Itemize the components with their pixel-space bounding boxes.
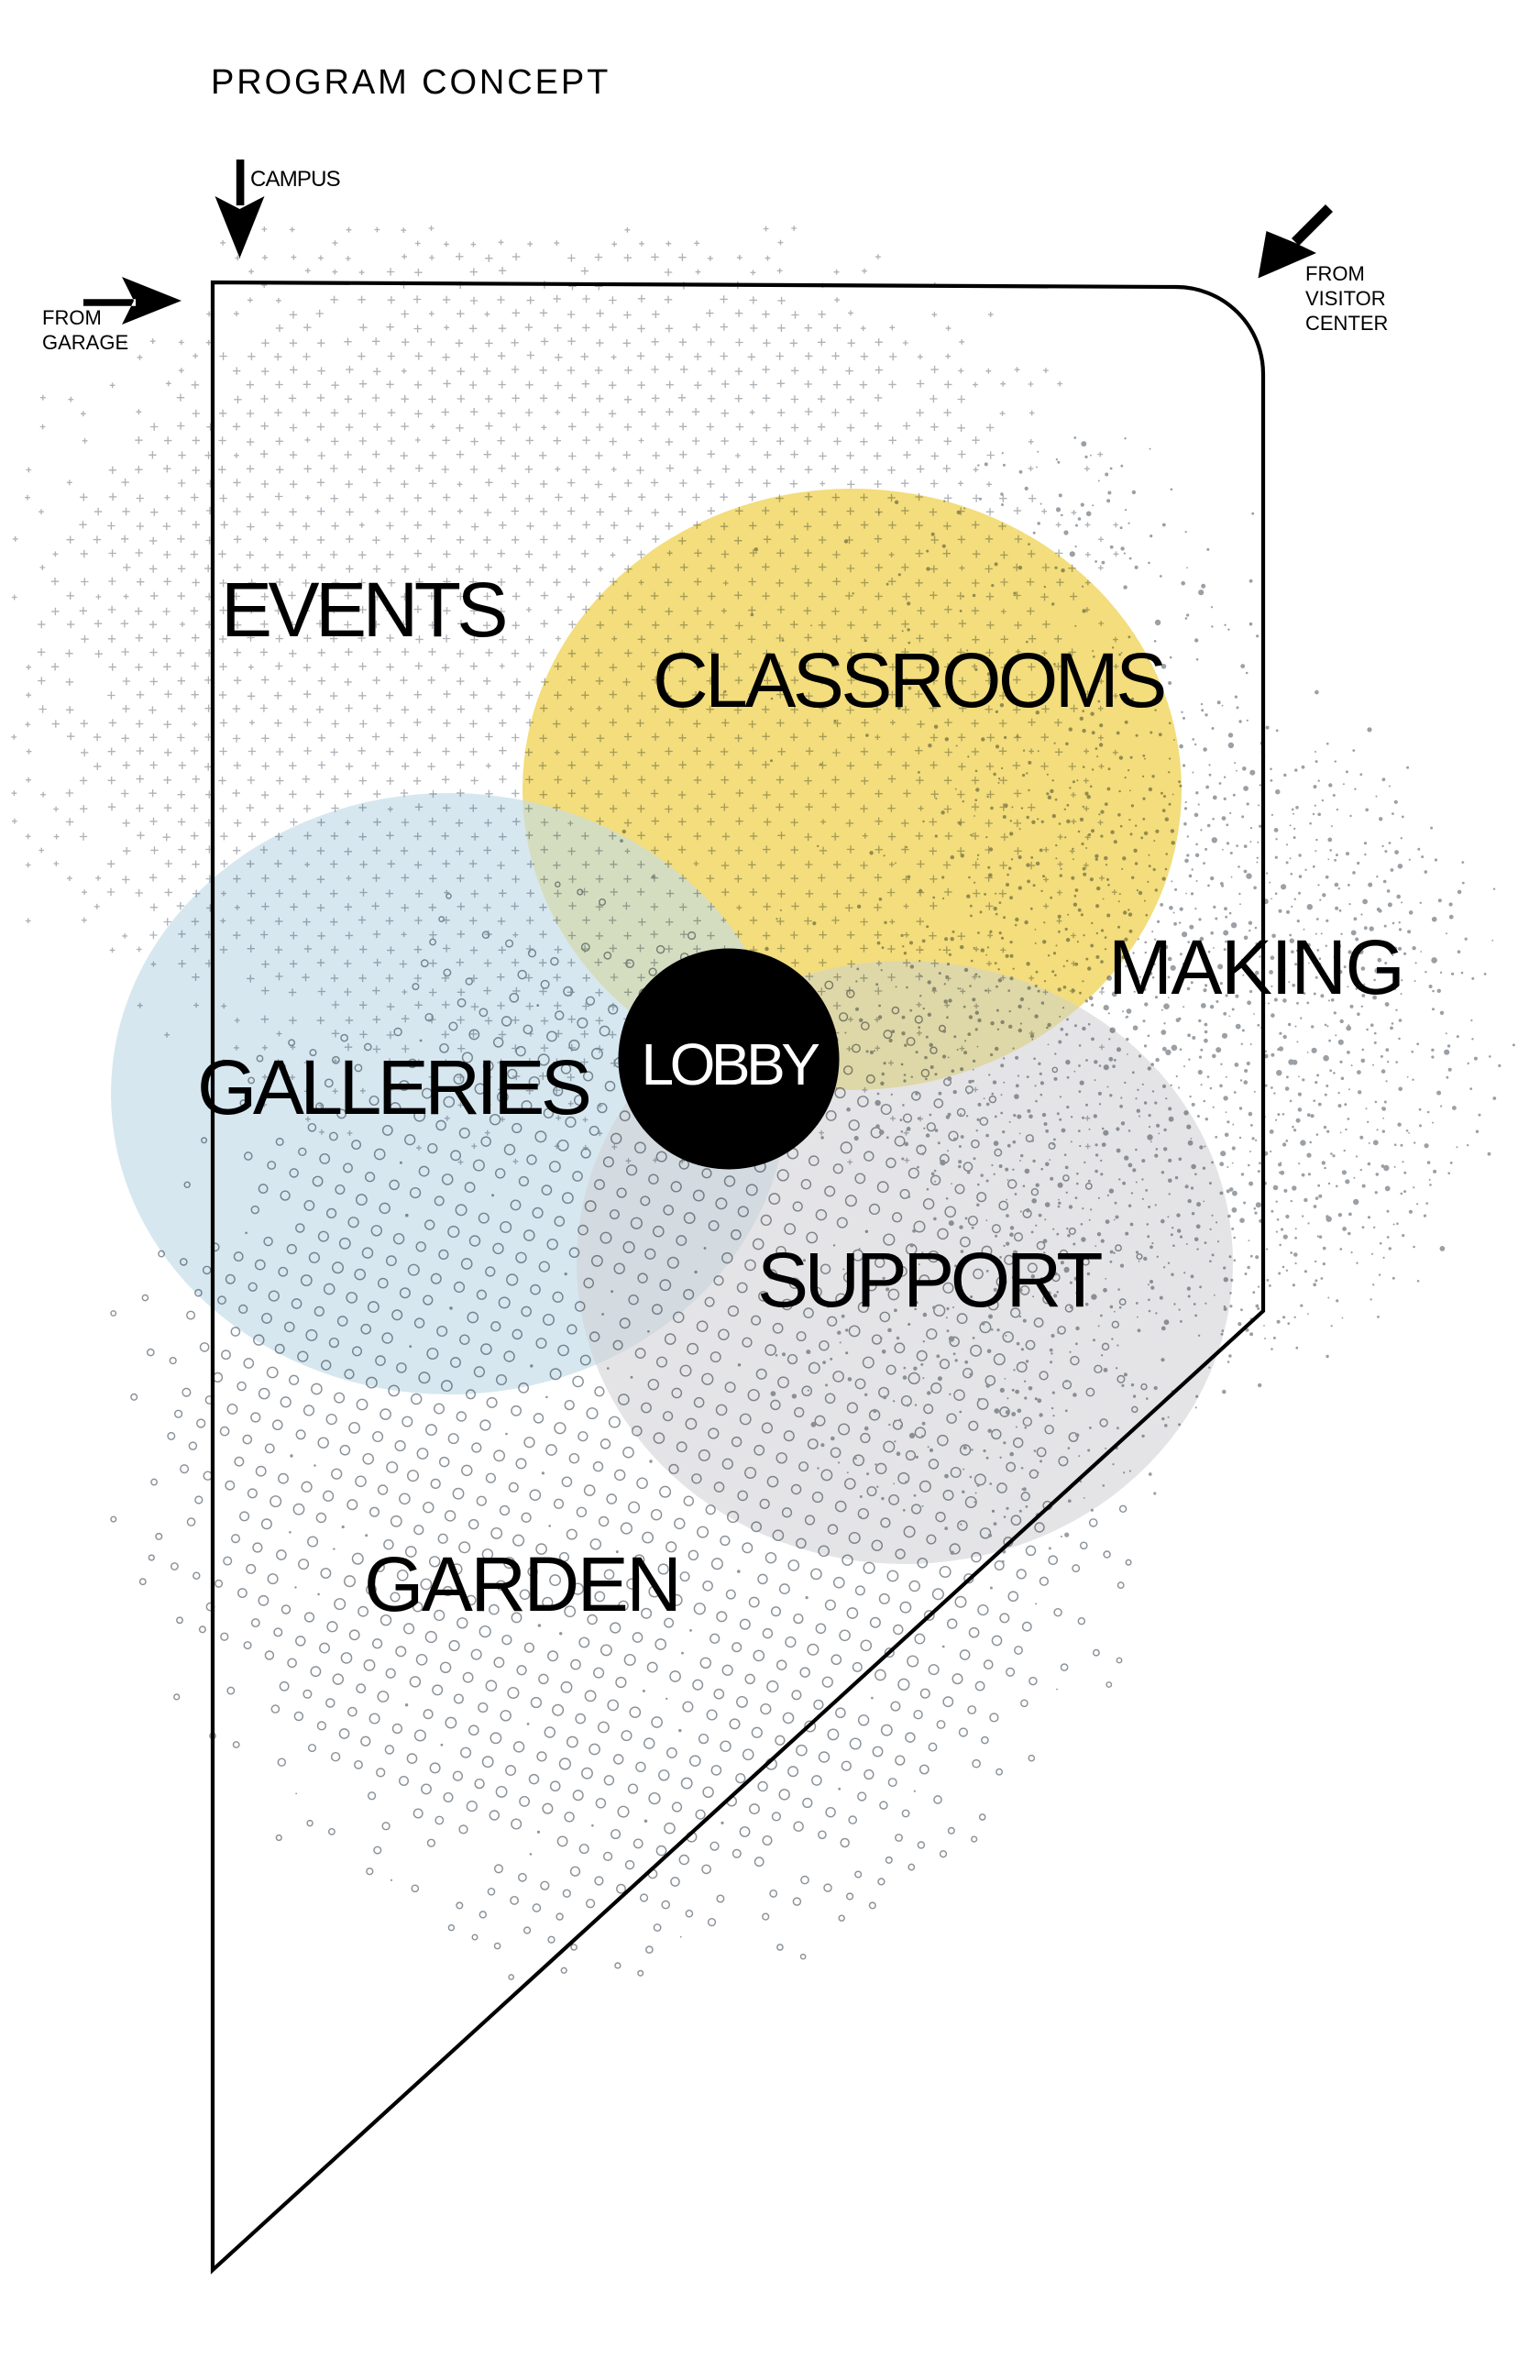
svg-text:CENTER: CENTER [1305, 312, 1388, 335]
svg-text:SUPPORT: SUPPORT [757, 1237, 1102, 1323]
svg-text:FROM: FROM [42, 306, 102, 329]
svg-text:MAKING: MAKING [1108, 924, 1403, 1010]
svg-text:EVENTS: EVENTS [221, 567, 506, 653]
svg-text:PROGRAM CONCEPT: PROGRAM CONCEPT [211, 63, 610, 102]
svg-text:GARAGE: GARAGE [42, 331, 128, 354]
svg-text:VISITOR: VISITOR [1305, 287, 1386, 310]
svg-text:CLASSROOMS: CLASSROOMS [653, 637, 1164, 723]
svg-text:FROM: FROM [1305, 262, 1365, 285]
svg-text:GALLERIES: GALLERIES [197, 1044, 589, 1130]
svg-text:GARDEN: GARDEN [364, 1541, 679, 1627]
svg-text:LOBBY: LOBBY [642, 1031, 820, 1097]
svg-text:CAMPUS: CAMPUS [250, 167, 340, 192]
